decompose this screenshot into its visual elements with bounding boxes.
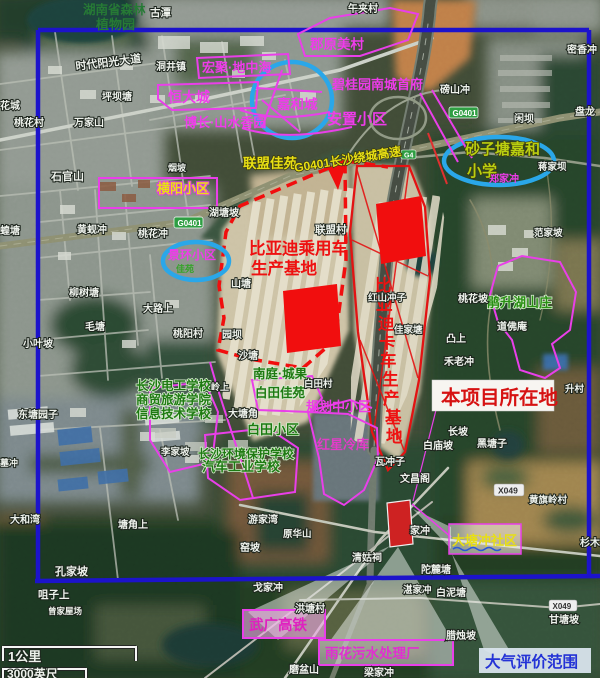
- svg-text:沙塘: 沙塘: [238, 349, 258, 362]
- svg-text:植物园: 植物园: [95, 17, 135, 32]
- svg-text:孔家坡: 孔家坡: [55, 564, 89, 578]
- svg-text:汽车工业学校: 汽车工业学校: [202, 459, 281, 474]
- svg-text:碧桂园南城首府: 碧桂园南城首府: [331, 77, 423, 92]
- svg-text:车: 车: [380, 350, 397, 370]
- svg-text:烟坡: 烟坡: [168, 162, 187, 173]
- svg-text:宏聚·地中海: 宏聚·地中海: [202, 60, 271, 75]
- svg-text:陀麓塘: 陀麓塘: [421, 563, 451, 576]
- svg-text:升村: 升村: [565, 383, 585, 395]
- svg-text:戈家冲: 戈家冲: [253, 581, 283, 594]
- svg-text:生: 生: [382, 369, 399, 389]
- svg-text:湛家冲: 湛家冲: [403, 584, 432, 596]
- svg-text:白田村: 白田村: [304, 378, 333, 390]
- svg-text:密香冲: 密香冲: [567, 43, 597, 56]
- svg-text:岭上: 岭上: [211, 381, 229, 392]
- svg-text:湖南省森林: 湖南省森林: [83, 2, 146, 17]
- svg-text:大气评价范围: 大气评价范围: [485, 652, 578, 671]
- svg-text:桃花坡: 桃花坡: [458, 292, 489, 305]
- svg-text:白田佳苑: 白田佳苑: [255, 385, 306, 400]
- svg-text:迪: 迪: [378, 313, 395, 333]
- svg-text:红山冲子: 红山冲子: [368, 292, 407, 304]
- svg-text:洞井镇: 洞井镇: [156, 60, 186, 73]
- svg-text:3000英尺: 3000英尺: [7, 666, 58, 678]
- svg-text:咀子上: 咀子上: [38, 588, 70, 601]
- svg-text:大路上: 大路上: [143, 302, 173, 315]
- svg-text:古潭: 古潭: [150, 6, 171, 19]
- svg-text:白田小区: 白田小区: [247, 422, 299, 437]
- svg-text:基: 基: [385, 407, 402, 427]
- svg-text:腊烛坡: 腊烛坡: [446, 629, 477, 642]
- svg-text:禾老冲: 禾老冲: [444, 355, 474, 368]
- svg-text:南庭·城果: 南庭·城果: [253, 366, 308, 381]
- svg-text:洪塘村: 洪塘村: [295, 602, 325, 615]
- svg-text:长坡: 长坡: [448, 425, 469, 438]
- svg-text:墓冲: 墓冲: [0, 457, 18, 468]
- svg-text:清姑祠: 清姑祠: [352, 551, 382, 564]
- svg-text:1公里: 1公里: [8, 649, 41, 664]
- svg-text:道佛庵: 道佛庵: [497, 320, 528, 333]
- svg-text:桃花冲: 桃花冲: [138, 227, 168, 240]
- svg-text:东塘园子: 东塘园子: [18, 408, 58, 421]
- svg-text:塘角上: 塘角上: [118, 518, 148, 531]
- svg-text:G0401: G0401: [453, 109, 478, 118]
- svg-text:佳家塘: 佳家塘: [394, 324, 423, 336]
- svg-text:联盟村: 联盟村: [315, 223, 347, 236]
- svg-text:联盟佳苑: 联盟佳苑: [243, 155, 297, 171]
- svg-text:佳苑: 佳苑: [176, 263, 194, 274]
- svg-text:嘉和城: 嘉和城: [276, 96, 318, 112]
- svg-text:景环小区: 景环小区: [168, 247, 216, 262]
- svg-text:磨盆山: 磨盆山: [288, 663, 319, 676]
- svg-text:蒋家坝: 蒋家坝: [538, 161, 567, 173]
- svg-text:柳树塘: 柳树塘: [69, 286, 99, 299]
- svg-text:小叶坡: 小叶坡: [22, 337, 54, 350]
- svg-text:桃花村: 桃花村: [14, 116, 44, 129]
- svg-text:李家坡: 李家坡: [160, 446, 190, 458]
- svg-text:石官山: 石官山: [50, 169, 84, 183]
- svg-text:黑塘子: 黑塘子: [477, 437, 507, 450]
- svg-text:X049: X049: [498, 486, 518, 496]
- svg-text:盘龙: 盘龙: [575, 105, 595, 118]
- svg-text:地: 地: [386, 426, 403, 446]
- svg-text:大塘冲社区: 大塘冲社区: [452, 533, 517, 548]
- svg-text:家冲: 家冲: [410, 524, 430, 537]
- svg-text:山塘: 山塘: [231, 277, 251, 290]
- svg-text:大塘角: 大塘角: [228, 407, 258, 420]
- svg-text:长沙电工学校: 长沙电工学校: [136, 378, 212, 393]
- svg-text:游家湾: 游家湾: [248, 513, 278, 526]
- svg-text:砂子塘嘉和: 砂子塘嘉和: [465, 140, 540, 158]
- svg-text:黄蚬冲: 黄蚬冲: [77, 223, 107, 236]
- svg-text:花城: 花城: [0, 99, 20, 112]
- svg-text:万家山: 万家山: [73, 116, 104, 129]
- svg-text:甘塘坡: 甘塘坡: [549, 613, 580, 626]
- svg-text:白庙坡: 白庙坡: [423, 439, 454, 452]
- svg-text:鹃升湖山庄: 鹃升湖山庄: [487, 295, 552, 310]
- svg-text:黄旗岭村: 黄旗岭村: [529, 494, 568, 506]
- svg-text:湖塘坡: 湖塘坡: [209, 206, 240, 219]
- svg-text:凸上: 凸上: [446, 332, 466, 345]
- svg-text:郡原美村: 郡原美村: [309, 36, 364, 52]
- svg-text:蝗塘: 蝗塘: [0, 224, 20, 237]
- svg-text:瓦冲子: 瓦冲子: [375, 455, 405, 468]
- svg-text:武广高铁: 武广高铁: [249, 616, 307, 634]
- svg-text:博长·山水香园: 博长·山水香园: [184, 115, 266, 130]
- svg-text:文昌阁: 文昌阁: [400, 472, 430, 485]
- svg-text:园坝: 园坝: [222, 328, 242, 341]
- svg-text:横阳小区: 横阳小区: [157, 181, 209, 196]
- svg-text:毛塘: 毛塘: [85, 320, 105, 333]
- svg-text:G4: G4: [404, 153, 413, 160]
- svg-text:G0401: G0401: [178, 219, 203, 228]
- svg-text:信息技术学校: 信息技术学校: [136, 406, 212, 421]
- svg-text:生产基地: 生产基地: [251, 258, 318, 278]
- svg-text:红星冷库: 红星冷库: [317, 437, 369, 452]
- svg-text:雨花污水处理厂: 雨花污水处理厂: [325, 645, 420, 661]
- svg-text:小学: 小学: [467, 162, 497, 180]
- svg-text:X049: X049: [553, 602, 572, 611]
- svg-text:原华山: 原华山: [283, 528, 312, 540]
- svg-text:曾家屋场: 曾家屋场: [48, 606, 83, 616]
- svg-text:梁家冲: 梁家冲: [363, 666, 394, 678]
- svg-text:杉木: 杉木: [580, 536, 600, 549]
- svg-text:磅山冲: 磅山冲: [440, 83, 470, 96]
- svg-text:白泥塘: 白泥塘: [436, 586, 466, 599]
- svg-text:午夹村: 午夹村: [348, 2, 378, 15]
- svg-text:商贸旅游学院: 商贸旅游学院: [136, 392, 212, 407]
- svg-text:范家坡: 范家坡: [534, 227, 563, 239]
- svg-text:产: 产: [383, 388, 400, 408]
- svg-text:比: 比: [375, 275, 392, 295]
- svg-text:比亚迪乘用车: 比亚迪乘用车: [249, 238, 348, 258]
- svg-text:规划中小区: 规划中小区: [306, 399, 371, 414]
- svg-text:窑坡: 窑坡: [240, 541, 261, 554]
- svg-text:大和湾: 大和湾: [10, 513, 40, 526]
- svg-text:桃阳村: 桃阳村: [173, 327, 203, 340]
- svg-text:本项目所在地: 本项目所在地: [441, 386, 559, 409]
- svg-text:坪坝塘: 坪坝塘: [102, 90, 132, 103]
- svg-text:恒大城: 恒大城: [168, 89, 210, 105]
- svg-text:闲坝: 闲坝: [514, 112, 534, 125]
- svg-text:安置小区: 安置小区: [327, 110, 387, 128]
